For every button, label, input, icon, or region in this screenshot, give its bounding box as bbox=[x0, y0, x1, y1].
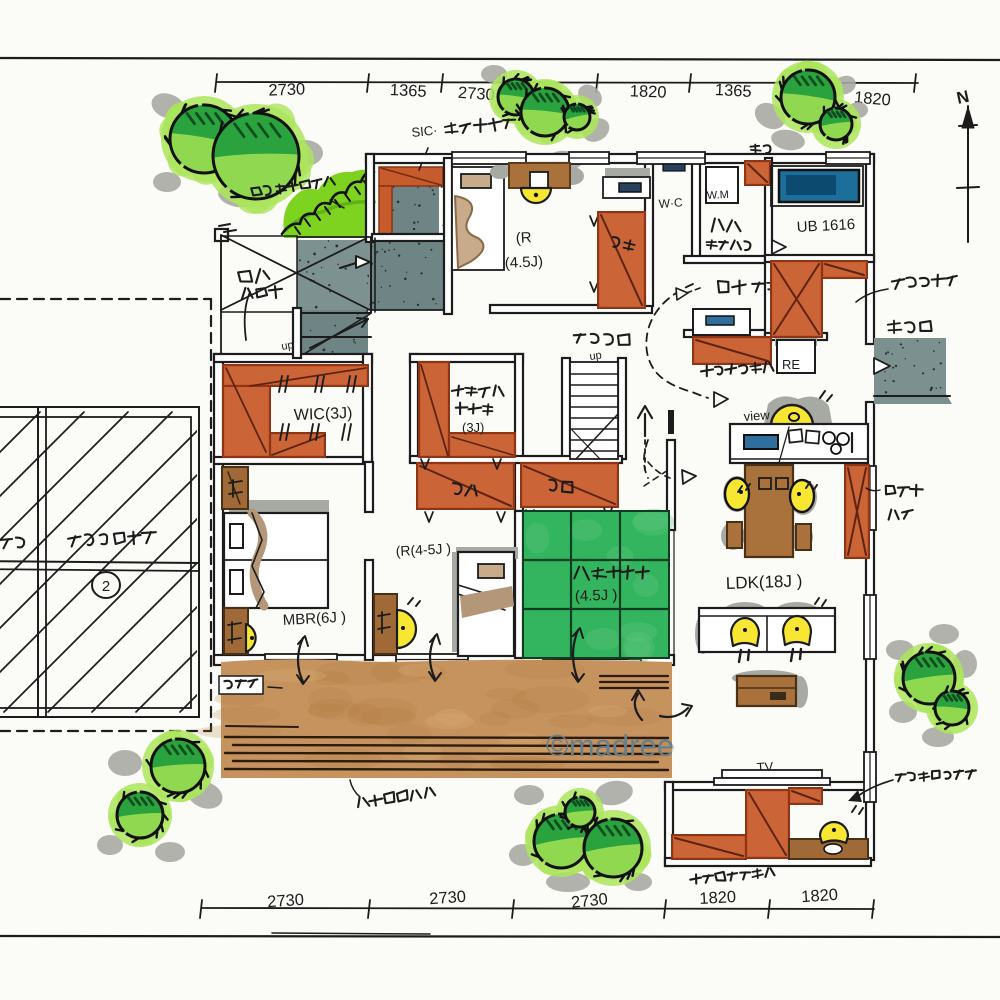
svg-text:1365: 1365 bbox=[714, 81, 752, 101]
svg-text:RE: RE bbox=[782, 357, 800, 372]
svg-text:(R: (R bbox=[515, 229, 532, 247]
svg-text:2: 2 bbox=[102, 578, 110, 595]
svg-text:1820: 1820 bbox=[801, 886, 839, 907]
svg-text:2730: 2730 bbox=[268, 80, 305, 99]
svg-text:SIC·: SIC· bbox=[411, 122, 438, 140]
svg-text:(4.5J): (4.5J) bbox=[504, 253, 543, 272]
svg-text:(4.5J ): (4.5J ) bbox=[575, 587, 618, 605]
svg-text:1365: 1365 bbox=[389, 81, 427, 101]
svg-text:MBR(6J ): MBR(6J ) bbox=[282, 609, 346, 629]
svg-text:LDK(18J ): LDK(18J ) bbox=[725, 571, 802, 593]
svg-text:up: up bbox=[589, 349, 603, 363]
svg-text:2730: 2730 bbox=[570, 890, 608, 912]
svg-text:(R(4-5J ): (R(4-5J ) bbox=[395, 540, 451, 559]
svg-text:(3J): (3J) bbox=[462, 420, 484, 435]
svg-text:view: view bbox=[743, 407, 771, 424]
svg-text:1820: 1820 bbox=[699, 888, 737, 908]
svg-text:W·C: W·C bbox=[658, 195, 683, 211]
svg-text:1820: 1820 bbox=[630, 82, 667, 101]
svg-text:W.M: W.M bbox=[707, 189, 730, 202]
svg-text:UB 1616: UB 1616 bbox=[796, 216, 855, 236]
svg-text:2730: 2730 bbox=[429, 888, 467, 909]
svg-text:2730: 2730 bbox=[267, 891, 305, 912]
svg-text:©madree: ©madree bbox=[546, 728, 674, 763]
svg-text:WIC(3J): WIC(3J) bbox=[294, 405, 353, 424]
